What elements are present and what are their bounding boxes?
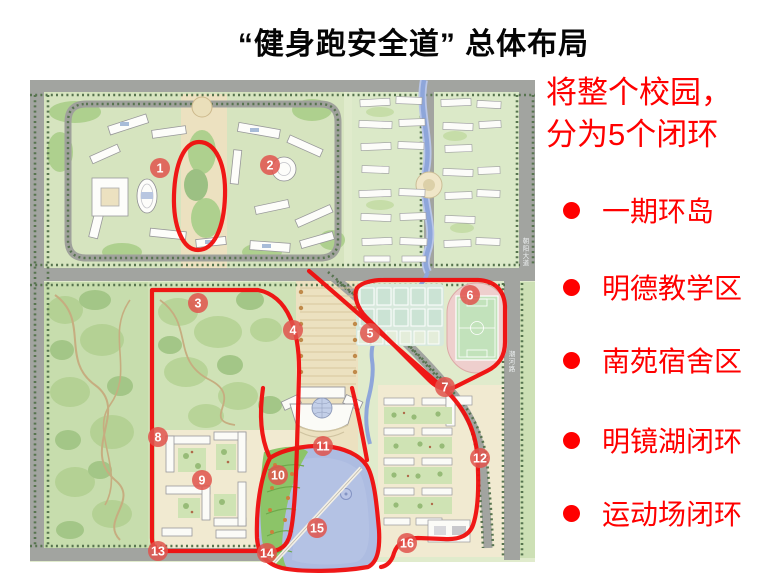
legend-item-label: 南苑宿舍区 — [602, 340, 742, 380]
legend-item-label: 一期环岛 — [602, 190, 714, 230]
bullet-icon — [563, 279, 580, 296]
map-marker-number: 16 — [400, 537, 414, 551]
map-marker-number: 11 — [316, 440, 329, 454]
map-marker-number: 12 — [473, 452, 487, 466]
legend-item-label: 运动场闭环 — [602, 493, 742, 533]
slide-title: “健身跑安全道” 总体布局 — [0, 19, 777, 63]
map-marker-number: 3 — [195, 297, 202, 311]
map-marker-number: 14 — [260, 547, 274, 561]
map-marker-number: 15 — [310, 522, 324, 536]
legend-item-stadium-loop: 运动场闭环 — [563, 493, 742, 533]
bullet-icon — [563, 432, 580, 449]
legend-header: 将整个校园， 分为5个闭环 — [546, 72, 776, 156]
campus-map: 12345678910111213141516 朝阳大道潮河路 — [30, 80, 535, 580]
legend-item-mingde-teaching: 明德教学区 — [563, 267, 742, 307]
road-label: 潮河路 — [509, 349, 516, 373]
road-label: 朝阳大道 — [523, 237, 530, 267]
legend-item-label: 明德教学区 — [602, 267, 742, 307]
bullet-icon — [563, 505, 580, 522]
map-marker-number: 6 — [467, 289, 474, 303]
legend-panel: 将整个校园， 分为5个闭环 一期环岛 明德教学区 南苑宿舍区 明镜湖闭环 运动场… — [546, 72, 776, 156]
legend-item-phase1-island: 一期环岛 — [563, 190, 714, 230]
legend-header-line2: 分为5个闭环 — [546, 114, 776, 156]
legend-item-nanyuan-dorms: 南苑宿舍区 — [563, 340, 742, 380]
map-marker-number: 7 — [442, 381, 449, 395]
campus-map-svg: 12345678910111213141516 朝阳大道潮河路 — [30, 80, 535, 580]
north-gate-plaza — [192, 97, 212, 117]
legend-item-label: 明镜湖闭环 — [602, 420, 742, 460]
map-marker-number: 8 — [155, 431, 162, 445]
bullet-icon — [563, 352, 580, 369]
legend-header-line1: 将整个校园， — [546, 72, 776, 114]
bullet-icon — [563, 202, 580, 219]
map-marker-number: 5 — [367, 327, 374, 341]
map-marker-number: 1 — [157, 162, 164, 176]
map-marker-number: 2 — [267, 159, 274, 173]
legend-item-mingjing-lake: 明镜湖闭环 — [563, 420, 742, 460]
map-marker-number: 9 — [199, 474, 206, 488]
map-marker-number: 13 — [151, 545, 165, 559]
map-marker-number: 4 — [290, 324, 297, 338]
map-marker-number: 10 — [271, 469, 285, 483]
